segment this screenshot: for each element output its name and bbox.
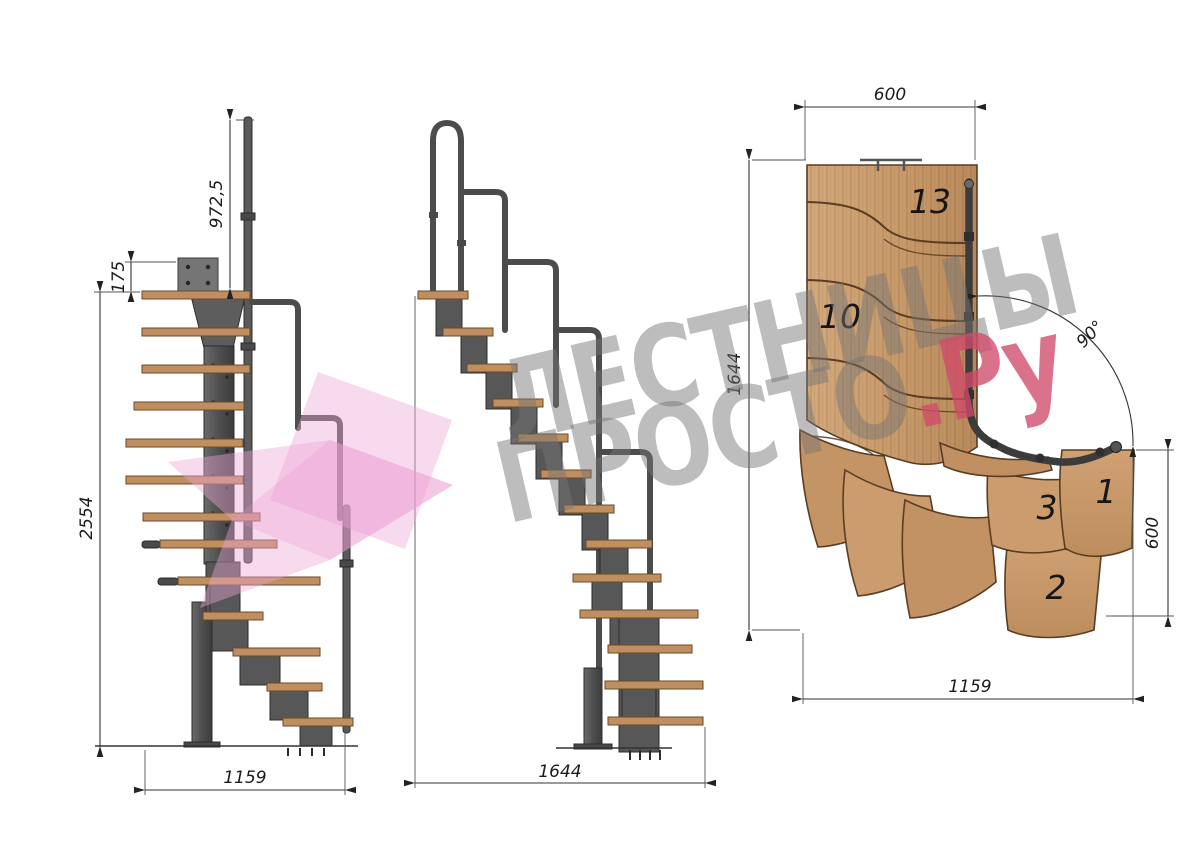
anchor-bolts [288,748,324,756]
dim-plate-offset-label: 175 [109,261,129,293]
handrail-loop [433,123,461,295]
dim-plan-exit-width-label: 600 [1143,517,1163,549]
side-support-post [584,668,602,746]
column-funnel [190,292,246,348]
handrail-step-1 [252,302,298,428]
dim-front-width-label: 1159 [223,768,266,788]
plan-step-3-label: 3 [1037,488,1058,527]
dim-plan-top-width-label: 600 [874,85,906,105]
plan-handrail-endcap [1111,442,1122,453]
support-post [192,602,212,744]
dim-rail-height-label: 972,5 [207,180,227,229]
plan-step-13-label: 13 [909,182,951,221]
side-rail-1 [461,192,505,330]
wall-plate [178,258,218,292]
drawing-canvas: 972,5 175 2554 1159 1644 600 1644 90° 60… [0,0,1200,849]
dim-side-length-label: 1644 [538,762,581,782]
dim-plan-length-label: 1159 [948,677,991,697]
dim-total-height-label: 2554 [77,496,97,539]
plan-step-2-label: 2 [1046,568,1067,607]
plan-step-1-label: 1 [1096,472,1117,511]
